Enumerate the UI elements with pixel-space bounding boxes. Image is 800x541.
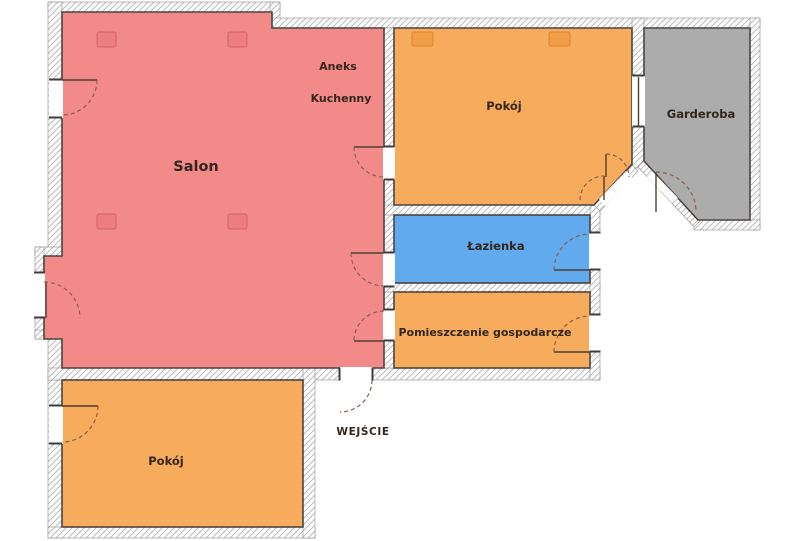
wall-segment bbox=[48, 368, 600, 380]
wall-opening-tick bbox=[590, 269, 601, 271]
wall-segment bbox=[270, 18, 760, 28]
room-marker bbox=[412, 32, 433, 46]
room-lazienka-label: Łazienka bbox=[466, 239, 524, 253]
wall-opening-tick bbox=[384, 286, 395, 288]
wall-opening-tick bbox=[590, 351, 601, 353]
wall-opening-tick bbox=[49, 405, 62, 407]
door-opening bbox=[383, 147, 395, 180]
room-garderoba-label: Garderoba bbox=[667, 107, 735, 121]
room-bottom-pokoj-label: Pokój bbox=[148, 454, 184, 468]
wall-segment bbox=[48, 2, 62, 256]
door-swing-arc bbox=[340, 380, 372, 412]
wall-segment bbox=[750, 18, 760, 230]
room-top-pokoj bbox=[394, 28, 632, 205]
wall-opening-tick bbox=[49, 443, 62, 445]
wall-segment bbox=[48, 527, 315, 538]
salon-marker bbox=[228, 214, 247, 229]
room-salon-label: Salon bbox=[173, 159, 218, 175]
wall-segment bbox=[303, 368, 315, 538]
door-opening bbox=[340, 367, 373, 381]
door-opening bbox=[383, 253, 395, 287]
wall-segment bbox=[384, 283, 600, 292]
wall-opening-tick bbox=[49, 79, 62, 81]
room-marker bbox=[549, 32, 570, 46]
wall-segment bbox=[694, 220, 760, 230]
room-top-pokoj-label: Pokój bbox=[486, 99, 522, 113]
wall-opening-tick bbox=[384, 309, 395, 311]
wall-opening-tick bbox=[590, 314, 601, 316]
entrance-label: WEJŚCIE bbox=[336, 425, 389, 438]
room-pomieszczenie-gospodarcze-label: Pomieszczenie gospodarcze bbox=[398, 326, 571, 339]
salon-marker bbox=[228, 32, 247, 47]
wall-opening-tick bbox=[34, 272, 45, 274]
door-opening bbox=[49, 406, 63, 444]
aneks-kuchenny-label-line1: Aneks bbox=[319, 60, 357, 73]
wall-segment bbox=[384, 205, 600, 215]
wall-opening-tick bbox=[384, 179, 395, 181]
door-opening bbox=[49, 80, 63, 118]
wall-opening-tick bbox=[384, 252, 395, 254]
wall-opening-tick bbox=[49, 117, 62, 119]
salon-marker bbox=[97, 32, 116, 47]
wall-segment bbox=[590, 205, 600, 380]
door-opening bbox=[34, 273, 45, 318]
room-garderoba bbox=[644, 28, 750, 220]
door-opening bbox=[589, 315, 601, 352]
door-opening bbox=[589, 233, 601, 270]
wall-opening-tick bbox=[384, 146, 395, 148]
wall-opening-tick bbox=[633, 75, 645, 77]
door-opening bbox=[383, 310, 395, 341]
floor-plan-page: Salon Aneks Kuchenny Pokój Garderoba Łaz… bbox=[0, 0, 800, 541]
wall-segment bbox=[48, 2, 280, 12]
wall-opening-tick bbox=[372, 368, 374, 381]
salon-marker bbox=[97, 214, 116, 229]
wall-opening-tick bbox=[34, 317, 45, 319]
floor-plan: Salon Aneks Kuchenny Pokój Garderoba Łaz… bbox=[0, 0, 800, 541]
wall-opening-tick bbox=[339, 368, 341, 381]
wall-opening-tick bbox=[590, 232, 601, 234]
wall-opening-tick bbox=[384, 340, 395, 342]
aneks-kuchenny-label-line2: Kuchenny bbox=[311, 92, 372, 105]
wall-segment bbox=[48, 380, 62, 538]
